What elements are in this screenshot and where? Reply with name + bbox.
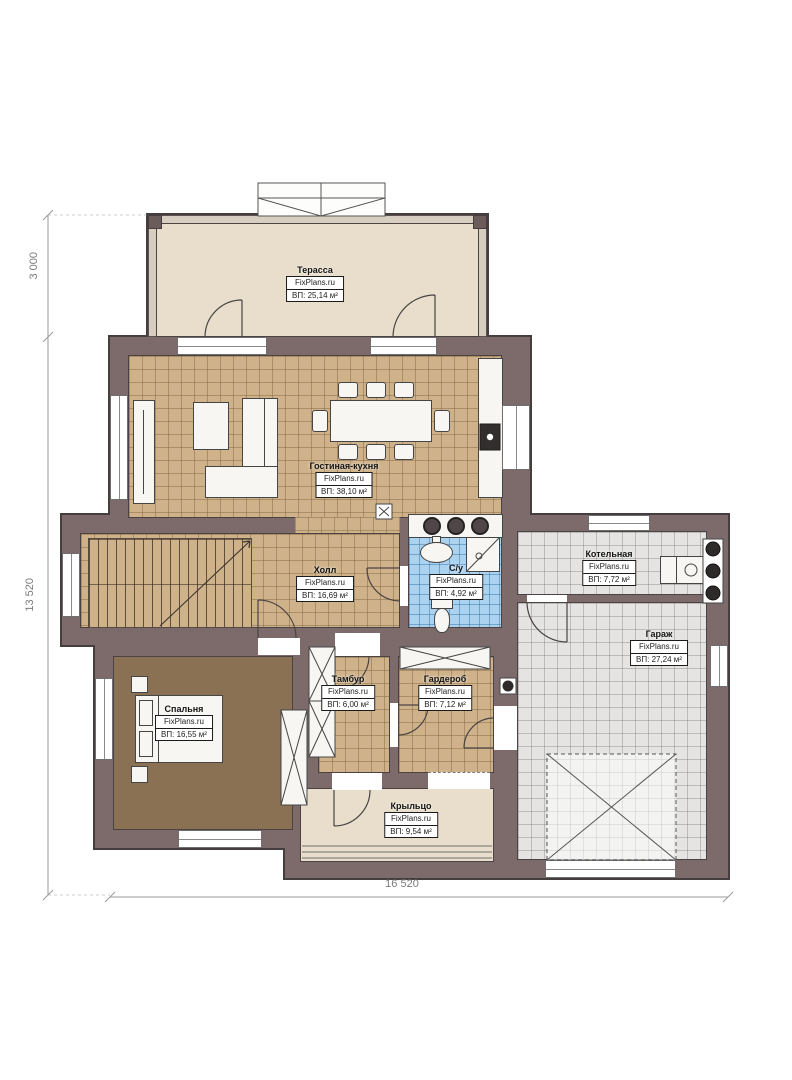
room-area: ВП: 25,14 м² bbox=[287, 290, 343, 302]
room-brand: FixPlans.ru bbox=[322, 686, 374, 699]
room-area: ВП: 4,92 м² bbox=[430, 588, 482, 600]
room-brand: FixPlans.ru bbox=[631, 641, 687, 654]
room-name: Терасса bbox=[286, 265, 344, 275]
room-brand: FixPlans.ru bbox=[287, 277, 343, 290]
room-area: ВП: 7,72 м² bbox=[583, 574, 635, 586]
room-area: ВП: 16,69 м² bbox=[297, 590, 353, 602]
room-name: Котельная bbox=[582, 549, 636, 559]
room-area: ВП: 9,54 м² bbox=[385, 826, 437, 838]
room-brand: FixPlans.ru bbox=[316, 473, 372, 486]
dimension-terrace-depth: 3 000 bbox=[28, 252, 40, 280]
room-area: ВП: 6,00 м² bbox=[322, 699, 374, 711]
room-brand: FixPlans.ru bbox=[385, 813, 437, 826]
room-brand: FixPlans.ru bbox=[297, 577, 353, 590]
room-brand: FixPlans.ru bbox=[156, 716, 212, 729]
room-brand: FixPlans.ru bbox=[430, 575, 482, 588]
room-name: Крыльцо bbox=[384, 801, 438, 811]
room-label-garage: Гараж FixPlans.ru ВП: 27,24 м² bbox=[630, 629, 688, 667]
room-label-wardrobe: Гардероб FixPlans.ru ВП: 7,12 м² bbox=[418, 674, 472, 712]
room-label-wc: С/у FixPlans.ru ВП: 4,92 м² bbox=[429, 563, 483, 601]
room-label-terrace: Терасса FixPlans.ru ВП: 25,14 м² bbox=[286, 265, 344, 303]
room-name: Гардероб bbox=[418, 674, 472, 684]
floor-plan-page: 3 000 13 520 16 520 bbox=[0, 0, 792, 1080]
room-area: ВП: 27,24 м² bbox=[631, 654, 687, 666]
room-label-tambour: Тамбур FixPlans.ru ВП: 6,00 м² bbox=[321, 674, 375, 712]
plan-linework bbox=[0, 0, 792, 1080]
room-label-porch: Крыльцо FixPlans.ru ВП: 9,54 м² bbox=[384, 801, 438, 839]
room-label-hall: Холл FixPlans.ru ВП: 16,69 м² bbox=[296, 565, 354, 603]
dimension-total-depth: 13 520 bbox=[24, 578, 36, 612]
room-label-living: Гостиная-кухня FixPlans.ru ВП: 38,10 м² bbox=[310, 461, 379, 499]
room-label-boiler: Котельная FixPlans.ru ВП: 7,72 м² bbox=[582, 549, 636, 587]
dimension-total-width: 16 520 bbox=[360, 878, 444, 890]
room-brand: FixPlans.ru bbox=[419, 686, 471, 699]
room-area: ВП: 38,10 м² bbox=[316, 486, 372, 498]
room-area: ВП: 16,55 м² bbox=[156, 729, 212, 741]
room-name: Гостиная-кухня bbox=[310, 461, 379, 471]
room-label-bedroom: Спальня FixPlans.ru ВП: 16,55 м² bbox=[155, 704, 213, 742]
room-name: Спальня bbox=[155, 704, 213, 714]
room-area: ВП: 7,12 м² bbox=[419, 699, 471, 711]
room-name: Гараж bbox=[630, 629, 688, 639]
room-name: С/у bbox=[429, 563, 483, 573]
room-brand: FixPlans.ru bbox=[583, 561, 635, 574]
room-name: Тамбур bbox=[321, 674, 375, 684]
room-name: Холл bbox=[296, 565, 354, 575]
